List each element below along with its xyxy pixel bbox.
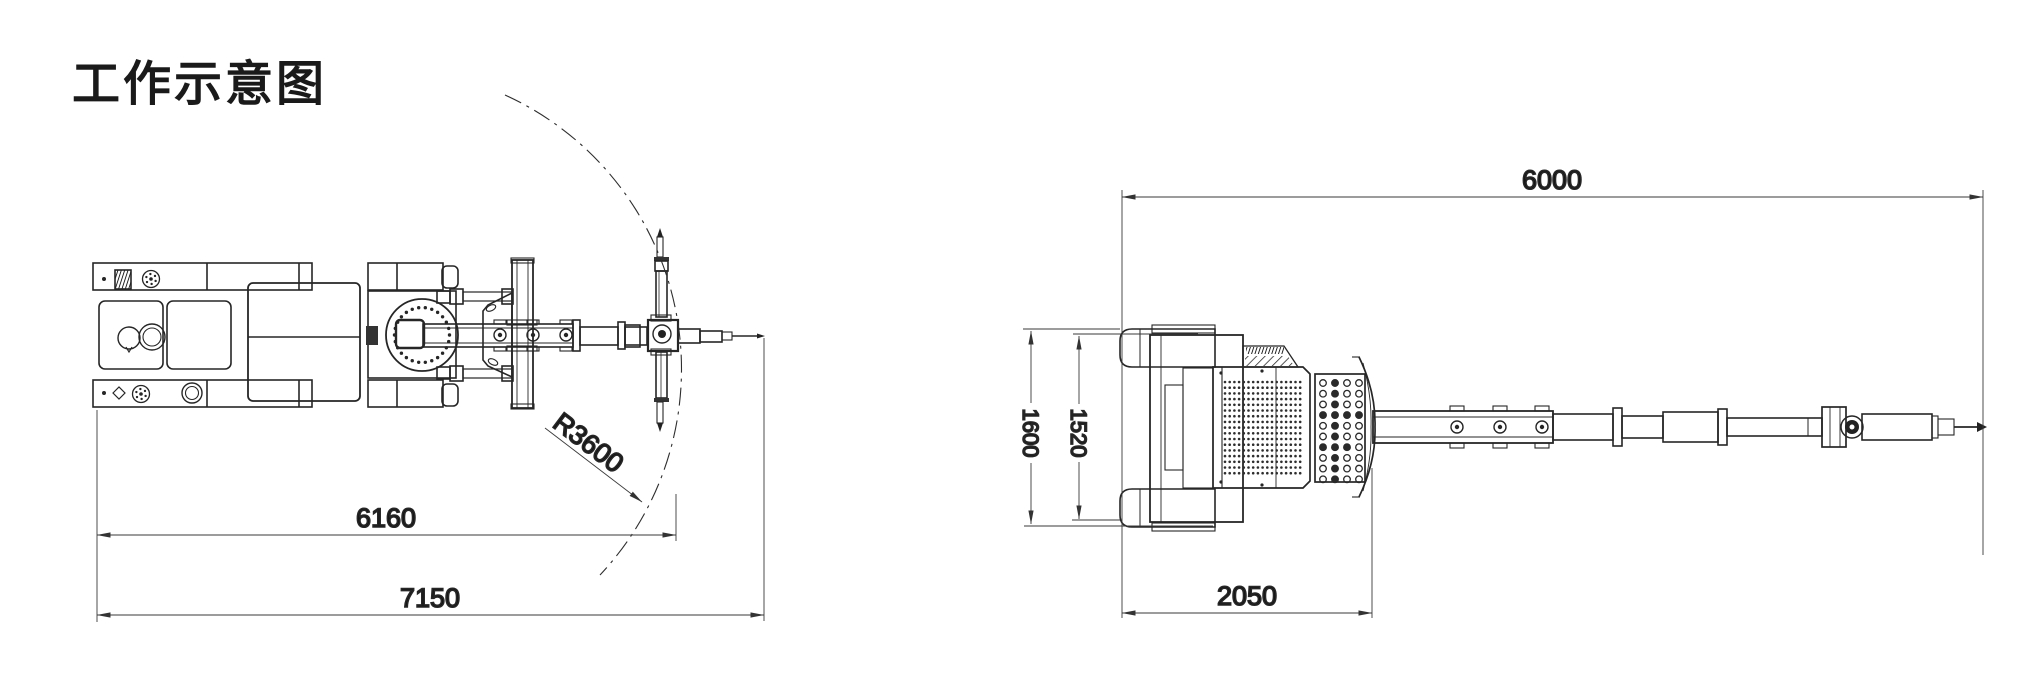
drill-bit-tip-right bbox=[1977, 422, 1987, 432]
valve-diamond bbox=[113, 387, 125, 399]
dim-label-r3600: R3600 bbox=[548, 407, 630, 479]
left-view: 6160 7150 R3600 bbox=[93, 95, 765, 622]
schematic-page: 工作示意图 bbox=[0, 0, 2044, 700]
drill-carriage bbox=[1822, 407, 1846, 447]
right-view-dimensions bbox=[1023, 190, 1983, 618]
right-view: 6000 1600 1520 2050 bbox=[1018, 165, 1987, 618]
chassis-bottom-rail bbox=[93, 380, 458, 407]
turntable-bolt-ring bbox=[393, 306, 451, 364]
crawler-tracks bbox=[1120, 325, 1215, 531]
drill-mast bbox=[648, 228, 765, 432]
bolt-details bbox=[133, 271, 1549, 434]
rivet-dot bbox=[102, 277, 106, 281]
equipment-panels bbox=[99, 301, 231, 369]
perforated-deck bbox=[1213, 367, 1310, 488]
chassis-top-rail bbox=[93, 263, 458, 290]
page-title: 工作示意图 bbox=[72, 56, 327, 112]
boom-right-view bbox=[1373, 406, 1987, 448]
dim-label-6000: 6000 bbox=[1522, 165, 1582, 195]
turntable bbox=[368, 291, 458, 378]
engine-cover bbox=[1243, 346, 1298, 367]
tank-circle bbox=[118, 327, 140, 349]
operator-housing bbox=[248, 283, 360, 401]
dim-label-1600: 1600 bbox=[1018, 409, 1043, 458]
dim-label-7150: 7150 bbox=[400, 583, 460, 613]
dim-label-6160: 6160 bbox=[356, 503, 416, 533]
radiator-grille bbox=[1315, 374, 1365, 483]
dim-label-2050: 2050 bbox=[1217, 581, 1277, 611]
drill-bit-tip bbox=[757, 334, 765, 339]
schematic-canvas: 工作示意图 bbox=[0, 0, 2044, 700]
dim-label-1520: 1520 bbox=[1066, 409, 1091, 458]
hatched-block bbox=[115, 270, 131, 289]
boom-root-block bbox=[396, 320, 424, 348]
